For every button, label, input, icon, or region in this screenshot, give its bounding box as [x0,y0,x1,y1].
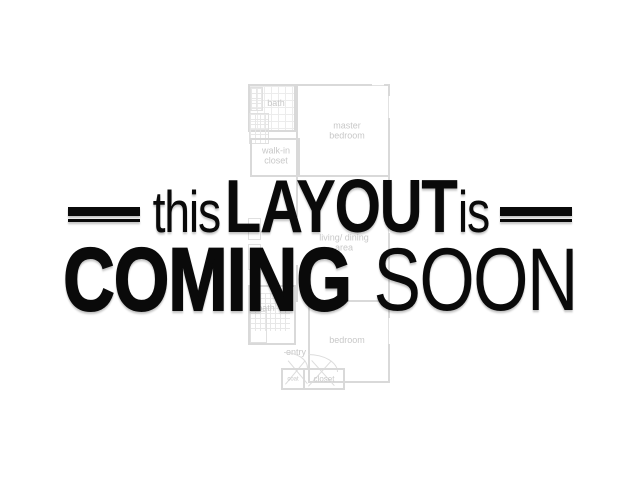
headline-line-2: COMING SOON [64,235,576,324]
headline-word-soon: SOON [374,235,577,324]
rule-thick-bar [500,207,572,216]
headline-rule-left-icon [68,207,140,222]
rule-thin-bar [68,219,140,222]
headline-rule-right-icon [500,207,572,222]
rule-thin-bar [500,219,572,222]
headline: this LAYOUT is COMING SOON [64,0,576,480]
headline-word-coming: COMING [63,235,351,324]
rule-thick-bar [68,207,140,216]
coming-soon-placeholder: bath master bedroom walk-in closet livin… [0,0,640,480]
